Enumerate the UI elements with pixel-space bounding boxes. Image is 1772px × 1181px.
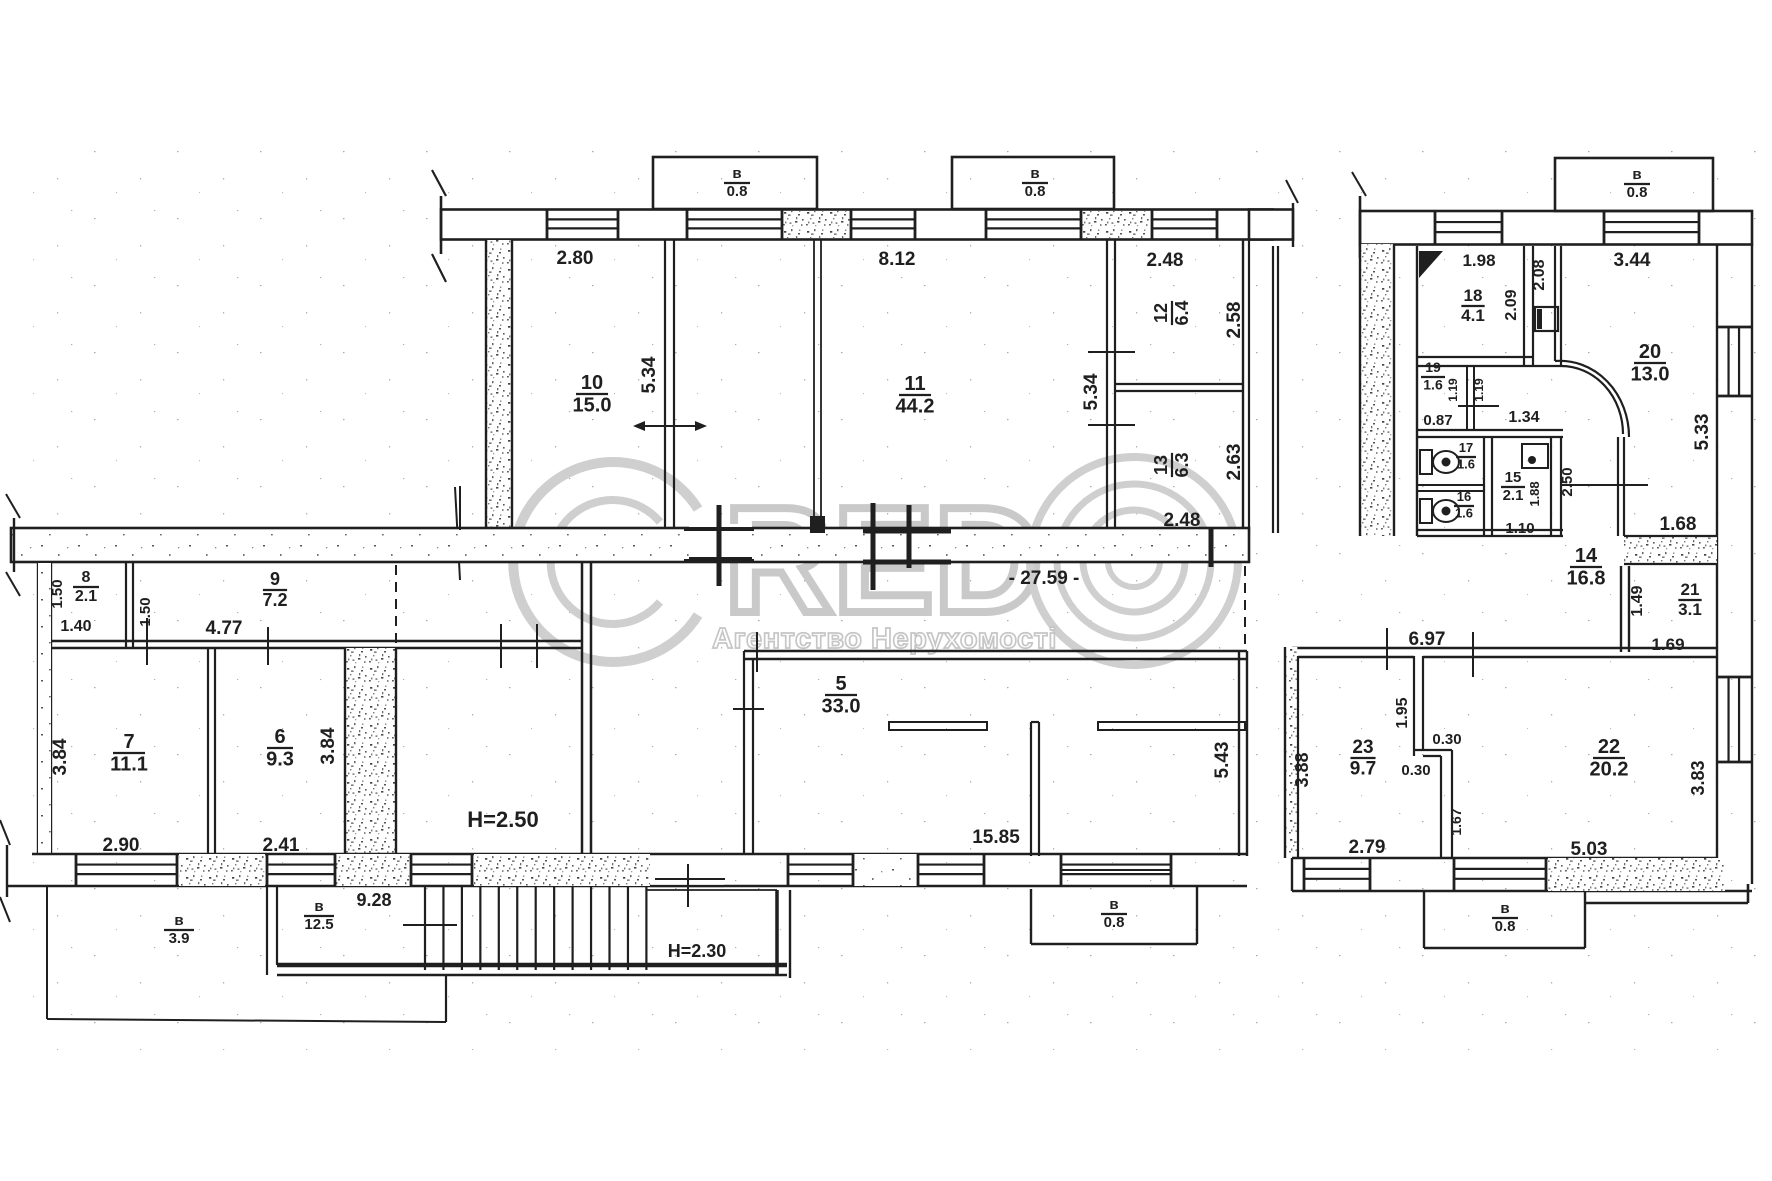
svg-text:16.8: 16.8 [1567, 568, 1606, 590]
svg-text:6: 6 [274, 726, 285, 748]
svg-text:6.3: 6.3 [1172, 452, 1192, 477]
svg-text:1.6: 1.6 [1423, 376, 1443, 392]
svg-text:в: в [1632, 166, 1641, 183]
svg-text:в: в [174, 912, 183, 929]
svg-text:9.3: 9.3 [266, 749, 294, 771]
svg-text:Н=2.50: Н=2.50 [467, 807, 539, 832]
svg-text:в: в [1500, 900, 1509, 917]
svg-text:2.1: 2.1 [1503, 487, 1524, 504]
svg-text:12: 12 [1151, 303, 1171, 323]
svg-text:9: 9 [270, 569, 280, 589]
svg-text:3.84: 3.84 [50, 738, 71, 775]
svg-text:4.1: 4.1 [1461, 306, 1485, 325]
svg-text:1.68: 1.68 [1660, 514, 1697, 535]
svg-text:7.2: 7.2 [262, 590, 287, 610]
svg-text:8.12: 8.12 [879, 249, 916, 270]
svg-text:22: 22 [1598, 736, 1620, 758]
svg-text:44.2: 44.2 [896, 396, 935, 418]
svg-text:8: 8 [82, 569, 91, 586]
svg-text:15: 15 [1505, 469, 1522, 486]
svg-text:11.1: 11.1 [110, 754, 148, 776]
svg-text:12.5: 12.5 [304, 916, 333, 933]
svg-text:0.30: 0.30 [1432, 731, 1461, 748]
svg-text:3.84: 3.84 [318, 727, 339, 764]
svg-text:13.0: 13.0 [1631, 364, 1670, 386]
svg-text:5.43: 5.43 [1212, 742, 1233, 779]
svg-text:16: 16 [1457, 489, 1471, 504]
svg-text:1.88: 1.88 [1527, 481, 1542, 506]
svg-text:20.2: 20.2 [1590, 759, 1629, 781]
svg-text:33.0: 33.0 [822, 696, 861, 718]
svg-text:в: в [1030, 165, 1039, 182]
svg-text:2.1: 2.1 [75, 588, 97, 605]
svg-text:1.40: 1.40 [60, 618, 91, 635]
svg-text:5.34: 5.34 [639, 356, 660, 393]
svg-text:в: в [314, 898, 323, 915]
svg-text:2.08: 2.08 [1531, 259, 1548, 290]
svg-text:23: 23 [1352, 737, 1373, 758]
svg-text:0.87: 0.87 [1423, 412, 1452, 429]
svg-text:Н=2.30: Н=2.30 [668, 941, 727, 961]
svg-text:1.19: 1.19 [1472, 378, 1486, 402]
svg-text:0.30: 0.30 [1401, 762, 1430, 779]
svg-text:13: 13 [1151, 455, 1171, 475]
svg-text:9.7: 9.7 [1350, 759, 1376, 780]
svg-text:20: 20 [1639, 341, 1661, 363]
svg-text:0.8: 0.8 [1495, 918, 1516, 935]
svg-text:0.8: 0.8 [727, 183, 748, 200]
svg-text:3.1: 3.1 [1678, 600, 1702, 619]
svg-text:в: в [732, 165, 741, 182]
svg-text:3.9: 3.9 [169, 930, 190, 947]
svg-text:1.19: 1.19 [1446, 378, 1460, 402]
svg-text:1.6: 1.6 [1455, 505, 1473, 520]
svg-text:15.0: 15.0 [573, 395, 612, 417]
svg-text:5: 5 [835, 673, 846, 695]
svg-text:5.34: 5.34 [1081, 373, 1102, 410]
svg-text:6.4: 6.4 [1172, 300, 1192, 325]
svg-text:21: 21 [1681, 580, 1700, 599]
svg-text:1.95: 1.95 [1394, 697, 1411, 728]
svg-text:1.69: 1.69 [1651, 635, 1684, 654]
svg-text:1.49: 1.49 [1629, 585, 1646, 616]
svg-text:5.33: 5.33 [1692, 414, 1713, 451]
svg-text:1.6: 1.6 [1457, 456, 1475, 471]
svg-text:2.80: 2.80 [557, 248, 594, 269]
svg-text:14: 14 [1575, 545, 1598, 567]
svg-text:в: в [1109, 896, 1118, 913]
svg-text:0.8: 0.8 [1627, 184, 1648, 201]
svg-text:2.48: 2.48 [1147, 250, 1184, 271]
svg-text:3.44: 3.44 [1614, 250, 1651, 271]
svg-text:1.34: 1.34 [1508, 409, 1539, 426]
svg-text:19: 19 [1425, 359, 1441, 375]
svg-text:0.8: 0.8 [1025, 183, 1046, 200]
svg-text:0.8: 0.8 [1104, 914, 1125, 931]
svg-text:6.97: 6.97 [1409, 629, 1446, 650]
svg-text:2.79: 2.79 [1349, 837, 1386, 858]
svg-text:15.85: 15.85 [972, 827, 1020, 848]
svg-text:17: 17 [1459, 440, 1473, 455]
svg-text:1.67: 1.67 [1448, 808, 1464, 835]
svg-text:9.28: 9.28 [356, 890, 391, 910]
svg-text:1.98: 1.98 [1462, 251, 1495, 270]
svg-text:2.50: 2.50 [1559, 467, 1576, 496]
svg-text:7: 7 [123, 731, 134, 753]
svg-text:- 27.59 -: - 27.59 - [1009, 568, 1080, 589]
svg-text:1.50: 1.50 [49, 579, 66, 608]
svg-text:1.10: 1.10 [1505, 520, 1534, 537]
svg-text:3.88: 3.88 [1292, 752, 1312, 787]
svg-text:11: 11 [904, 373, 925, 395]
svg-text:4.77: 4.77 [206, 618, 243, 639]
svg-text:18: 18 [1464, 286, 1483, 305]
svg-text:10: 10 [581, 372, 603, 394]
svg-text:2.09: 2.09 [1503, 289, 1520, 320]
svg-text:3.83: 3.83 [1688, 760, 1708, 795]
svg-text:1.50: 1.50 [137, 597, 154, 626]
